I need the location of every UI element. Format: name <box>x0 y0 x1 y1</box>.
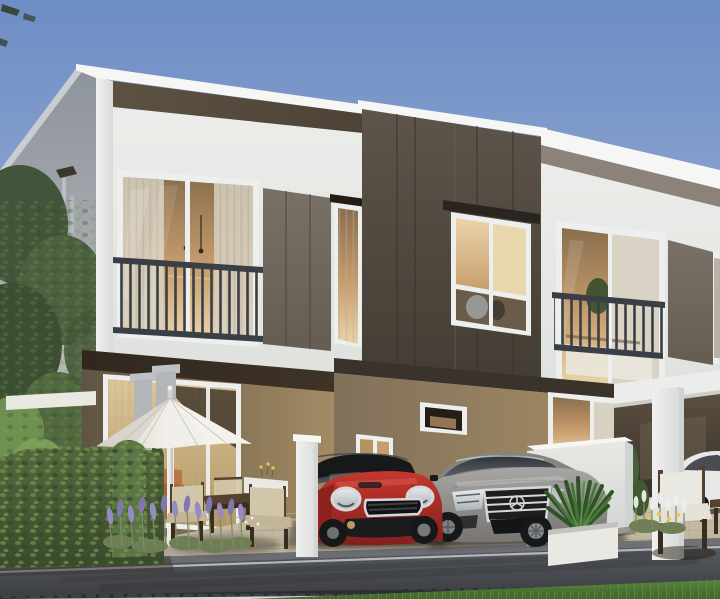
slim-window <box>330 194 366 348</box>
mini-grille-icon <box>365 499 422 516</box>
bedroom-window-left <box>113 170 263 347</box>
bedroom-window-right <box>552 221 668 406</box>
hopper-window <box>420 402 467 435</box>
feature-box-window <box>443 200 540 336</box>
bonnet-scoop <box>358 482 382 488</box>
side-mirror-icon <box>430 475 438 481</box>
patio-end-post <box>293 434 321 557</box>
hedge <box>0 440 175 576</box>
feature-box <box>358 100 547 380</box>
accent-panel-left <box>263 188 331 351</box>
shutter-panel <box>668 240 720 365</box>
townhouse-rendering: 3D exterior rendering of modern two-stor… <box>0 0 720 599</box>
rendering-canvas: 3D exterior rendering of modern two-stor… <box>0 0 720 599</box>
